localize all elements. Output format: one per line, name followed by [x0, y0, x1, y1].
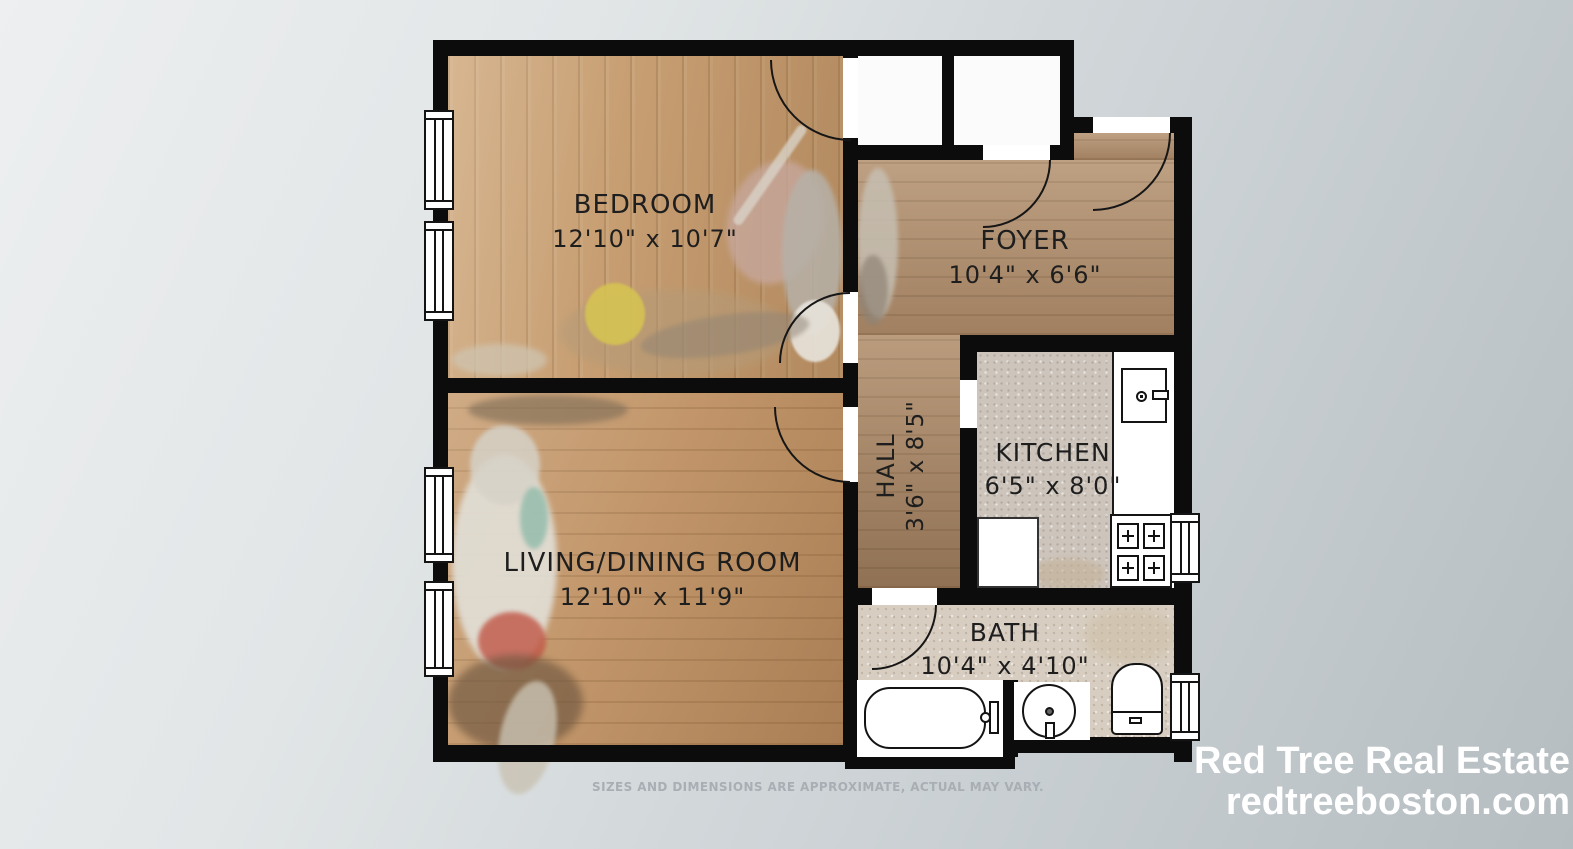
wall-kitchen-west-a — [960, 352, 977, 380]
bedroom-fabric-corner — [452, 344, 547, 376]
bedroom-window-2 — [424, 221, 454, 321]
window-glass — [1180, 683, 1190, 731]
wall-closet-right-vertical — [1060, 40, 1074, 160]
bedroom-yellow-disc — [585, 283, 645, 345]
window-glass — [434, 231, 444, 311]
wall-kitchen-top — [960, 335, 1192, 352]
wall-hall-west-b — [843, 138, 858, 292]
refrigerator-fixture — [977, 517, 1039, 588]
room-dimensions: 12'10" x 10'7" — [455, 225, 835, 253]
doorway-bedroom-hall — [843, 292, 858, 363]
room-label-bedroom: BEDROOM 12'10" x 10'7" — [455, 190, 835, 253]
wall-bath-top-right — [937, 588, 1192, 605]
closet-left — [858, 56, 942, 145]
room-label-hall: HALL 3'6" x 8'5" — [872, 381, 958, 551]
bath-sink-pedestal — [1045, 722, 1055, 739]
wall-bedroom-living-divider — [433, 378, 858, 393]
wall-right — [1174, 117, 1192, 762]
window-glass — [434, 591, 444, 667]
doorway-living-hall — [843, 407, 858, 482]
room-dimensions: 10'4" x 6'6" — [880, 261, 1170, 289]
wall-bottom-living — [433, 745, 858, 762]
living-window-1 — [424, 467, 454, 563]
living-teal-item — [520, 487, 548, 549]
floor-plan-canvas: BEDROOM 12'10" x 10'7" FOYER 10'4" x 6'6… — [0, 0, 1573, 849]
doorway-bedroom-closet — [843, 58, 858, 138]
room-label-living-dining: LIVING/DINING ROOM 12'10" x 11'9" — [455, 548, 850, 611]
room-dimensions: 12'10" x 11'9" — [455, 583, 850, 611]
bath-sink-drain — [1045, 707, 1054, 716]
stove-burner — [1117, 523, 1139, 549]
doorway-kitchen — [960, 380, 977, 428]
room-name: BEDROOM — [455, 190, 835, 220]
wall-foyer-top-left — [1074, 117, 1093, 133]
living-window-2 — [424, 581, 454, 677]
room-dimensions: 10'4" x 4'10" — [860, 652, 1150, 680]
bedroom-window-1 — [424, 110, 454, 210]
bath-window — [1170, 673, 1200, 741]
doorway-entry — [1093, 117, 1170, 133]
kitchen-sink-handle — [1152, 390, 1169, 400]
stove-burner — [1117, 555, 1139, 581]
stove-burner — [1143, 523, 1165, 549]
room-name: FOYER — [880, 226, 1170, 256]
wall-hall-west-d — [843, 482, 858, 762]
closet-right — [954, 56, 1060, 145]
brand-website: redtreeboston.com — [1194, 782, 1570, 823]
room-name: LIVING/DINING ROOM — [455, 548, 850, 578]
wall-top-main — [433, 40, 1074, 56]
room-label-bath: BATH 10'4" x 4'10" — [860, 618, 1150, 680]
room-label-kitchen: KITCHEN 6'5" x 8'0" — [953, 438, 1153, 500]
foyer-floor-strip — [1074, 133, 1174, 160]
wall-hall-west-c — [843, 363, 858, 407]
wall-closet-bottom-right — [1050, 145, 1074, 160]
kitchen-sink-faucet — [1136, 391, 1147, 402]
window-glass — [1180, 523, 1190, 573]
stove-burner — [1143, 555, 1165, 581]
room-dimensions: 3'6" x 8'5" — [903, 381, 929, 551]
toilet-tank-line — [1113, 711, 1161, 713]
stove-fixture — [1110, 514, 1172, 588]
living-top-strip — [468, 395, 628, 425]
wall-closet-divider — [942, 40, 954, 152]
brand-company: Red Tree Real Estate — [1194, 741, 1570, 782]
disclaimer-text: SIZES AND DIMENSIONS ARE APPROXIMATE, AC… — [433, 780, 1203, 794]
room-name: HALL — [872, 381, 900, 551]
wall-bath-top-left — [858, 588, 872, 605]
room-dimensions: 6'5" x 8'0" — [953, 472, 1153, 500]
doorway-closet-foyer — [983, 145, 1050, 160]
wall-closet-bottom-left — [858, 145, 983, 160]
window-glass — [434, 477, 444, 553]
wall-hall-west-a — [843, 40, 858, 58]
room-name: BATH — [860, 618, 1150, 647]
room-name: KITCHEN — [953, 438, 1153, 467]
toilet-flush-handle — [1129, 717, 1142, 724]
room-label-foyer: FOYER 10'4" x 6'6" — [880, 226, 1170, 289]
brand-block: Red Tree Real Estate redtreeboston.com — [1194, 741, 1570, 823]
kitchen-floor-patch — [1030, 558, 1105, 590]
window-glass — [434, 120, 444, 200]
doorway-bath — [872, 588, 937, 605]
kitchen-window — [1170, 513, 1200, 583]
bathtub-knob — [980, 712, 991, 723]
bathtub-fixture — [864, 687, 986, 749]
